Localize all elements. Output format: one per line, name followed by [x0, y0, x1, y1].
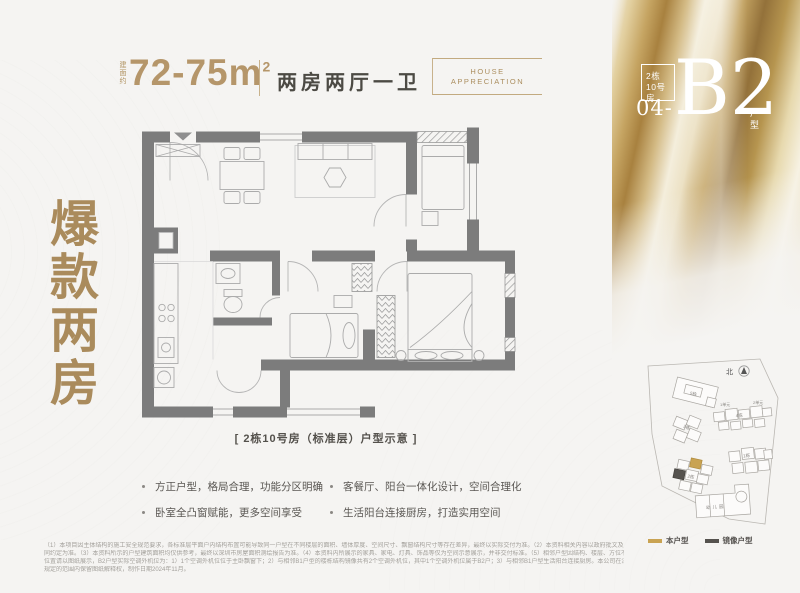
badge-building: 2栋	[646, 71, 671, 82]
feature-item: 方正户型，格局合理，功能分区明确	[142, 473, 330, 499]
kindergarten-building	[695, 484, 751, 518]
north-label: 北	[726, 368, 733, 376]
unit-type-code: B2	[674, 42, 778, 134]
area-value: 72-75m2	[129, 52, 271, 94]
feature-text: 生活阳台连接厨房，打造实用空间	[343, 505, 501, 520]
floor-plan	[130, 115, 522, 428]
north-compass: 北	[726, 366, 749, 376]
feature-item: 客餐厅、阳台一体化设计，空间合理化	[330, 473, 534, 499]
building-1	[728, 445, 773, 474]
feature-list: 方正户型，格局合理，功能分区明确 客餐厅、阳台一体化设计，空间合理化 卧室全凸窗…	[142, 473, 534, 525]
feature-item: 卧室全凸窗赋能，更多空间享受	[142, 499, 330, 525]
bullet-dot-icon	[330, 485, 333, 488]
disclaimer-text: （1）本项目因主体结构的施工安全规范要求，各标准层平面户内结构布置可能导致同一户…	[44, 542, 624, 574]
unit-type-suffix: 户型	[748, 108, 761, 132]
site-plan: 北	[632, 356, 790, 534]
bullet-dot-icon	[330, 511, 333, 514]
site-plan-legend: 本户型 镜像户型	[648, 535, 753, 546]
legend-item-mirror-unit: 镜像户型	[705, 535, 753, 546]
header-divider	[259, 60, 260, 96]
legend-label: 本户型	[666, 535, 689, 546]
building-4	[713, 405, 773, 432]
poster-page: 2栋 10号房 04- B2 户型 建面约 72-75m2 两房两厅一卫 HOU…	[0, 0, 800, 593]
this-unit-swatch	[648, 539, 662, 543]
disclaimer-line: 规定的范围内保留图纸解释权，制作日期2024年11月。	[44, 566, 624, 574]
floor-plan-caption: [ 2栋10号房（标准层）户型示意 ]	[130, 430, 522, 446]
unit-2-label: 2单元	[753, 399, 763, 405]
feature-text: 卧室全凸窗赋能，更多空间享受	[155, 505, 302, 520]
feature-item: 生活阳台连接厨房，打造实用空间	[330, 499, 534, 525]
feature-text: 客餐厅、阳台一体化设计，空间合理化	[343, 479, 522, 494]
feature-text: 方正户型，格局合理，功能分区明确	[155, 479, 323, 494]
house-appreciation-tagline: HOUSE APPRECIATION	[432, 58, 542, 95]
bullet-dot-icon	[142, 485, 145, 488]
unit-1-label: 1单元	[720, 401, 730, 407]
tagline-line1: HOUSE	[433, 67, 542, 77]
mirror-unit-swatch	[705, 539, 719, 543]
bullet-dot-icon	[142, 511, 145, 514]
mirror-unit-marker	[673, 469, 686, 480]
tagline-line2: APPRECIATION	[433, 77, 542, 87]
disclaimer-line: 位置请以图纸展示，B2户型实际空调外机位为：1）1个空调外机位位于主卧飘窗下；2…	[44, 558, 624, 566]
floor-plan-furniture	[154, 144, 484, 388]
legend-item-this-unit: 本户型	[648, 535, 689, 546]
legend-label: 镜像户型	[723, 535, 753, 546]
floor-plan-walls	[142, 128, 515, 418]
hero-title: 爆款两房	[36, 198, 104, 410]
area-number: 72-75m	[129, 52, 263, 93]
disclaimer-line: （1）本项目因主体结构的施工安全规范要求，各标准层平面户内结构布置可能导致同一户…	[44, 542, 624, 550]
badge-number: 04-	[636, 96, 673, 120]
area-prefix-label: 建面约	[117, 61, 126, 85]
disclaimer-line: 同约定为准。（3）本资料所示的户型建筑面积均仅供参考，最终以深圳市房屋面积测绘报…	[44, 550, 624, 558]
north-arrow-icon	[741, 367, 747, 374]
layout-label: 两房两厅一卫	[268, 66, 430, 95]
this-unit-marker	[689, 458, 702, 469]
